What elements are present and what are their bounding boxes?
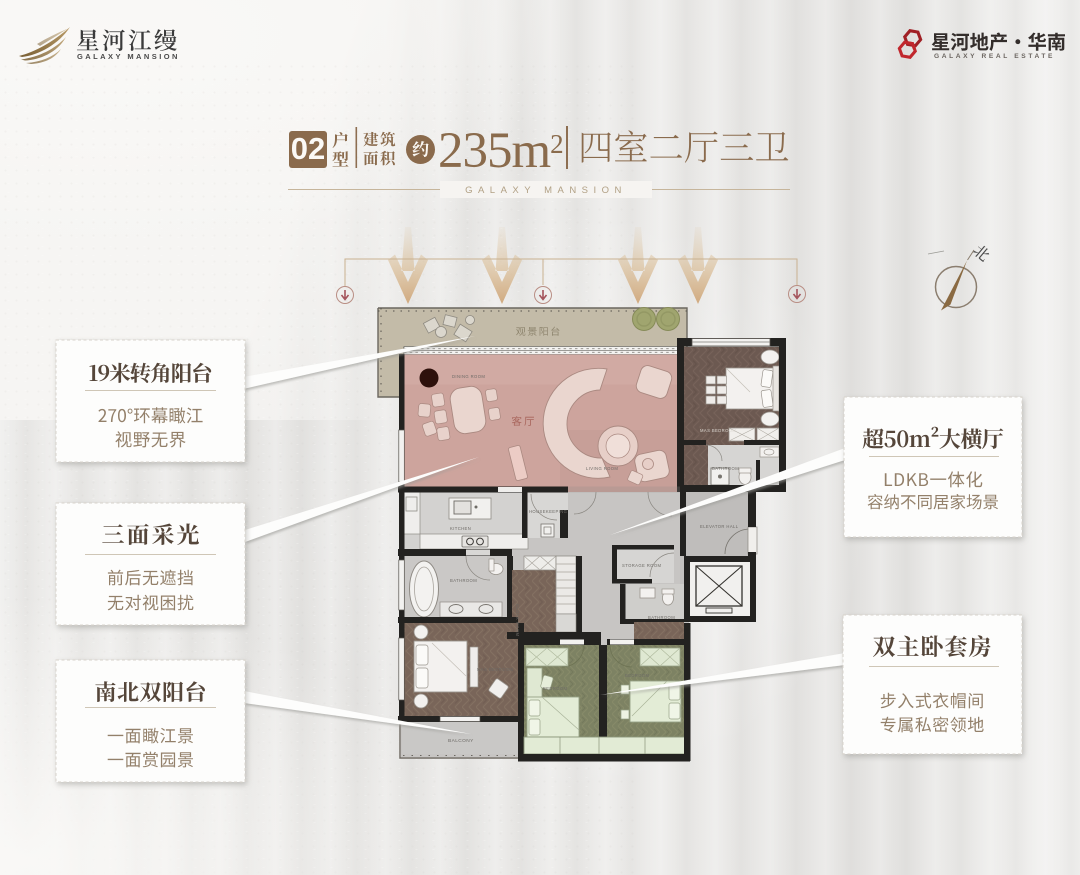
svg-text:ELEVATOR HALL: ELEVATOR HALL	[700, 524, 739, 529]
svg-text:MAS BEDROOM: MAS BEDROOM	[700, 428, 736, 433]
svg-text:BATHROOM: BATHROOM	[450, 578, 477, 583]
svg-text:DINING ROOM: DINING ROOM	[452, 374, 485, 379]
svg-text:KITCHEN: KITCHEN	[450, 526, 471, 531]
svg-text:STORAGE ROOM: STORAGE ROOM	[622, 563, 662, 568]
svg-text:BEDROOM: BEDROOM	[625, 673, 650, 678]
svg-text:LIVING ROOM: LIVING ROOM	[586, 466, 618, 471]
svg-text:CLOAK ROOM: CLOAK ROOM	[515, 604, 520, 636]
svg-text:BATHROOM: BATHROOM	[712, 466, 739, 471]
svg-text:MAS BEDROOM: MAS BEDROOM	[477, 667, 513, 672]
svg-text:BATHROOM: BATHROOM	[648, 615, 675, 620]
svg-text:HOUSEKEEPING: HOUSEKEEPING	[529, 509, 567, 514]
svg-text:BEDROOM: BEDROOM	[543, 686, 568, 691]
svg-text:BALCONY: BALCONY	[448, 738, 474, 744]
